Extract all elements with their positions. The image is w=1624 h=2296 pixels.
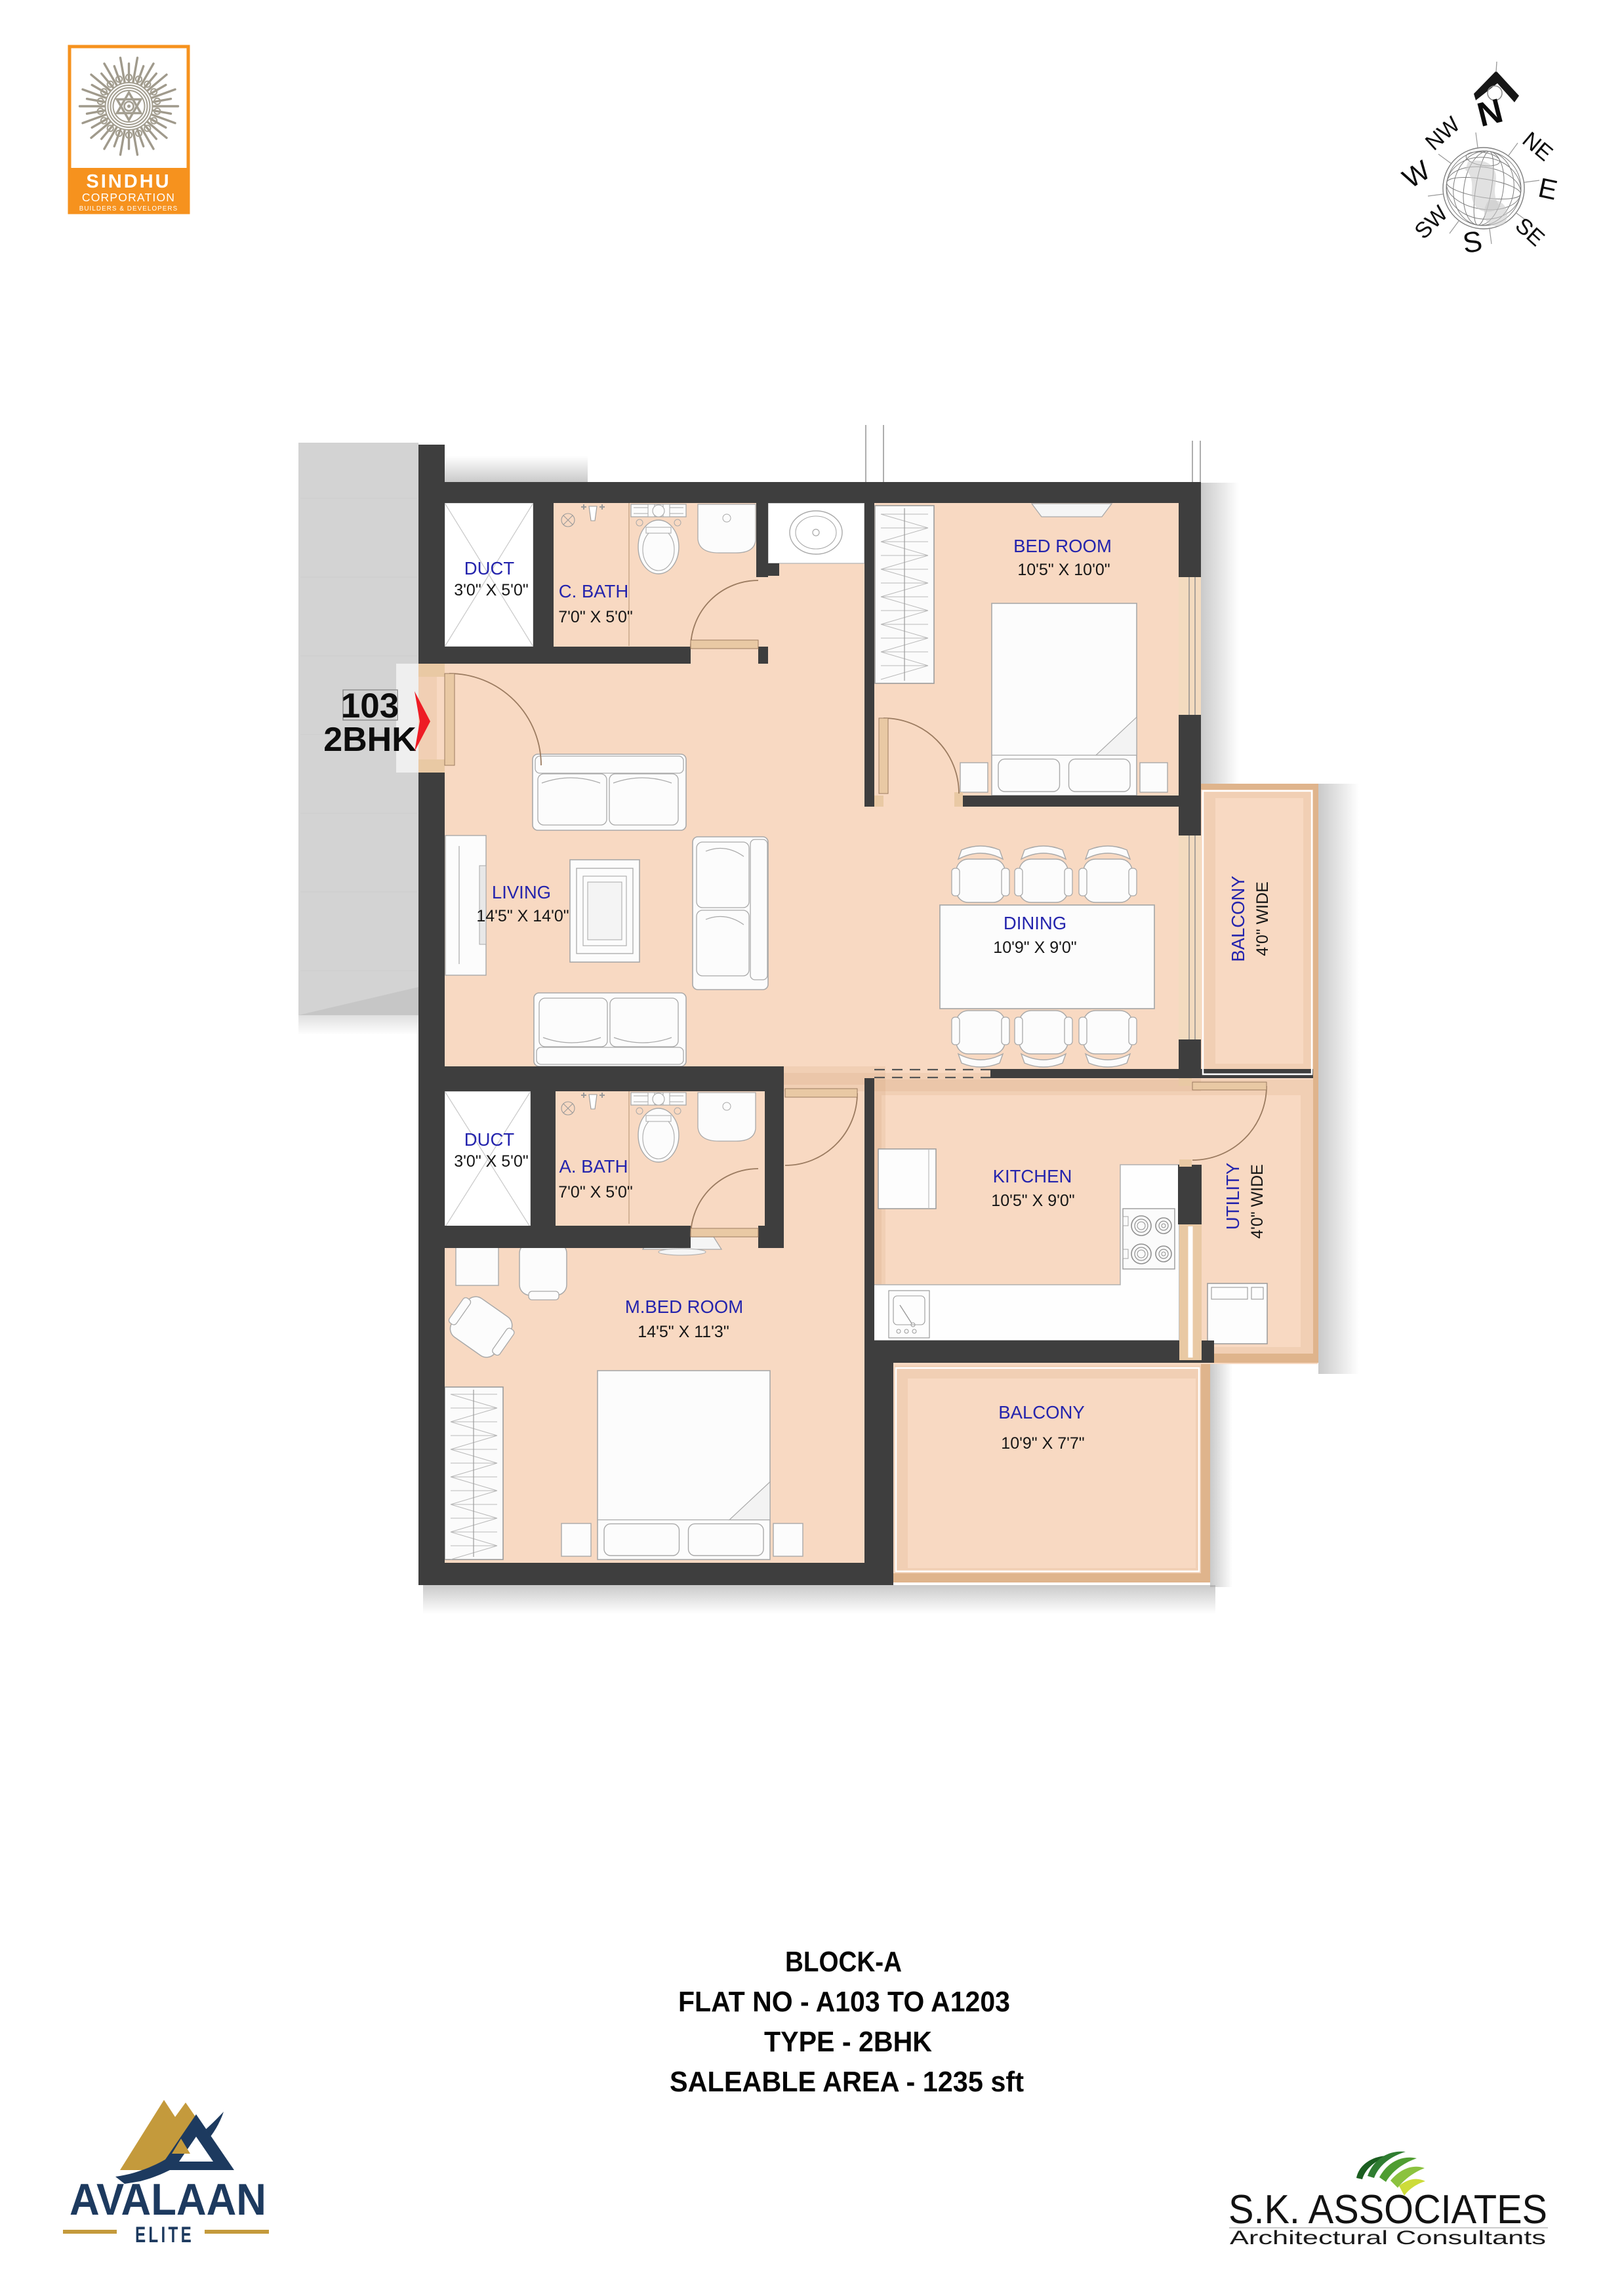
svg-text:FLAT NO - A103 TO A1203: FLAT NO - A103 TO A1203 bbox=[678, 1986, 1010, 2018]
svg-text:103: 103 bbox=[341, 687, 399, 725]
svg-text:4'0" WIDE: 4'0" WIDE bbox=[1248, 1164, 1267, 1239]
svg-text:DUCT: DUCT bbox=[464, 558, 515, 578]
svg-text:10'9" X 9'0": 10'9" X 9'0" bbox=[993, 938, 1076, 957]
svg-text:3'0" X 5'0": 3'0" X 5'0" bbox=[454, 1152, 528, 1171]
svg-text:KITCHEN: KITCHEN bbox=[993, 1166, 1072, 1186]
svg-text:7'0" X 5'0": 7'0" X 5'0" bbox=[558, 608, 632, 626]
svg-text:ELITE: ELITE bbox=[135, 2223, 194, 2247]
svg-text:BED ROOM: BED ROOM bbox=[1013, 536, 1112, 556]
svg-text:10'5" X 10'0": 10'5" X 10'0" bbox=[1017, 561, 1110, 579]
svg-text:A. BATH: A. BATH bbox=[559, 1156, 628, 1177]
svg-text:DUCT: DUCT bbox=[464, 1129, 515, 1150]
svg-text:SALEABLE AREA - 1235 sft: SALEABLE AREA - 1235 sft bbox=[670, 2066, 1024, 2098]
svg-text:10'9" X 7'7": 10'9" X 7'7" bbox=[1001, 1434, 1084, 1453]
svg-text:4'0" WIDE: 4'0" WIDE bbox=[1253, 881, 1272, 956]
svg-text:BUILDERS & DEVELOPERS: BUILDERS & DEVELOPERS bbox=[79, 205, 178, 212]
svg-text:DINING: DINING bbox=[1004, 913, 1066, 933]
svg-text:TYPE - 2BHK: TYPE - 2BHK bbox=[764, 2026, 932, 2058]
svg-text:SINDHU: SINDHU bbox=[86, 171, 171, 192]
svg-text:CORPORATION: CORPORATION bbox=[82, 191, 175, 204]
svg-text:14'5" X 14'0": 14'5" X 14'0" bbox=[476, 907, 569, 925]
svg-text:14'5" X 11'3": 14'5" X 11'3" bbox=[638, 1323, 729, 1341]
svg-text:BALCONY: BALCONY bbox=[998, 1402, 1084, 1422]
svg-text:UTILITY: UTILITY bbox=[1223, 1163, 1243, 1230]
svg-text:Architectural Consultants: Architectural Consultants bbox=[1230, 2227, 1546, 2249]
svg-text:2BHK: 2BHK bbox=[323, 721, 416, 759]
svg-text:AVALAAN: AVALAAN bbox=[70, 2175, 266, 2225]
svg-text:M.BED ROOM: M.BED ROOM bbox=[625, 1297, 743, 1317]
svg-text:BLOCK-A: BLOCK-A bbox=[785, 1946, 902, 1978]
svg-text:10'5" X 9'0": 10'5" X 9'0" bbox=[991, 1192, 1074, 1210]
svg-text:C. BATH: C. BATH bbox=[559, 581, 628, 601]
svg-text:BALCONY: BALCONY bbox=[1228, 876, 1248, 961]
svg-text:3'0" X 5'0": 3'0" X 5'0" bbox=[454, 581, 528, 599]
svg-text:7'0" X 5'0": 7'0" X 5'0" bbox=[558, 1183, 632, 1201]
svg-text:S.K. ASSOCIATES: S.K. ASSOCIATES bbox=[1228, 2187, 1547, 2232]
svg-text:LIVING: LIVING bbox=[492, 882, 551, 902]
